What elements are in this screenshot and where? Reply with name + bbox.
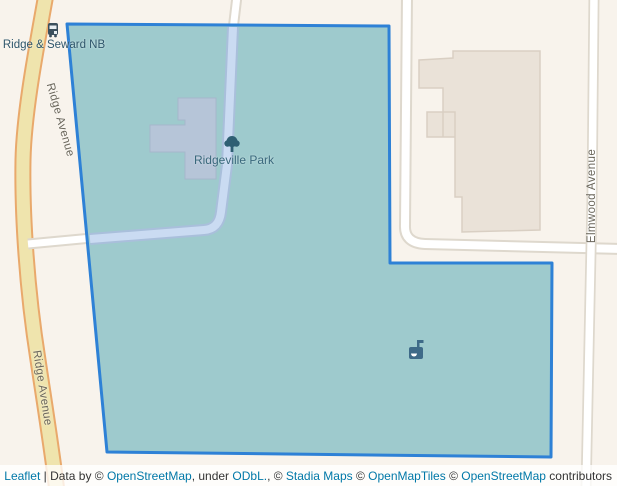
- attribution-link-odbl[interactable]: ODbL.: [232, 469, 267, 483]
- attribution-text-contributors: contributors: [546, 469, 612, 483]
- attribution-link-openmaptiles[interactable]: OpenMapTiles: [368, 469, 446, 483]
- map-canvas[interactable]: Ridge & Seward NB Ridgeville Park Ridge …: [0, 0, 617, 486]
- attribution-text-databy: Data by ©: [50, 469, 107, 483]
- attribution-bar: Leaflet | Data by © OpenStreetMap, under…: [0, 465, 617, 486]
- attribution-text-under: , under: [192, 469, 233, 483]
- attribution-link-openstreetmap-1[interactable]: OpenStreetMap: [107, 469, 192, 483]
- attribution-text-copy-3: ©: [446, 469, 462, 483]
- attribution-link-leaflet[interactable]: Leaflet: [4, 469, 40, 483]
- attribution-text-comma: , ©: [267, 469, 286, 483]
- attribution-link-stadia-maps[interactable]: Stadia Maps: [286, 469, 353, 483]
- attribution-text-copy-2: ©: [353, 469, 369, 483]
- map-tiles: [0, 0, 617, 486]
- park-access-road-west: [28, 238, 92, 244]
- attribution-separator: |: [40, 469, 50, 483]
- attribution-link-openstreetmap-2[interactable]: OpenStreetMap: [461, 469, 546, 483]
